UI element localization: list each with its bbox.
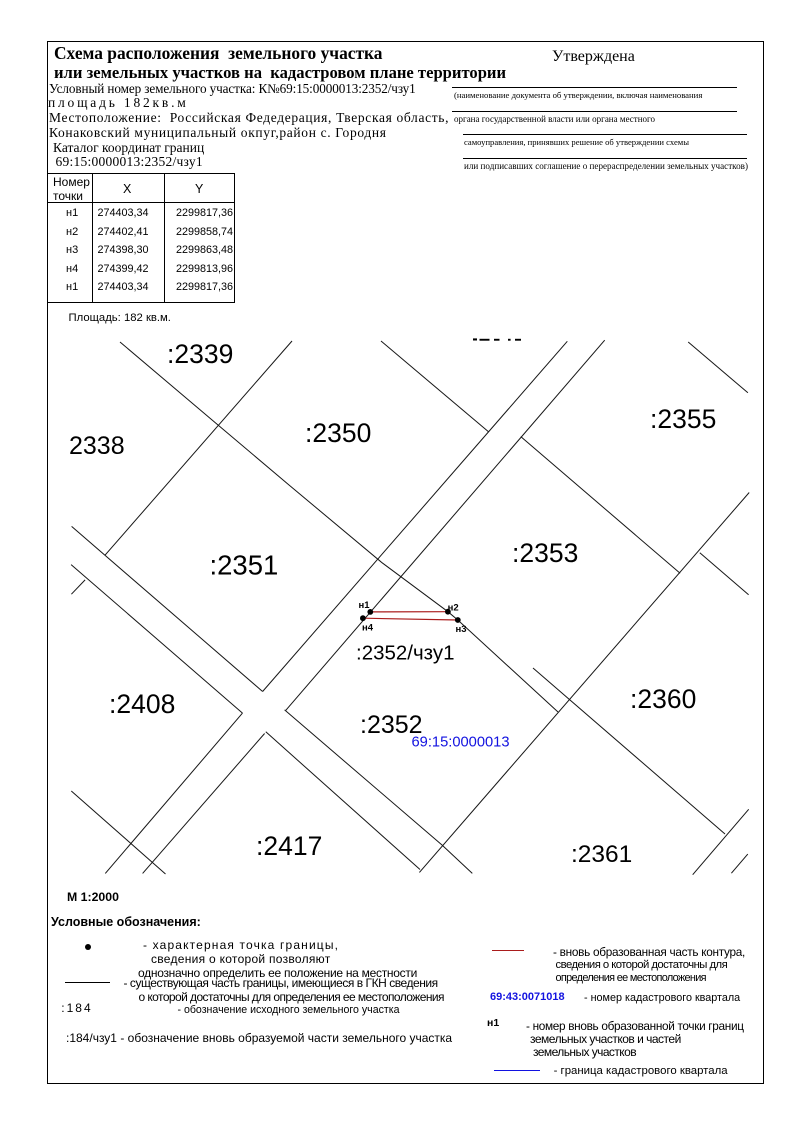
svg-text::2408: :2408 (109, 689, 175, 719)
svg-text:2338: 2338 (69, 432, 125, 460)
svg-text::2355: :2355 (650, 404, 716, 434)
svg-text::2353: :2353 (512, 538, 578, 568)
svg-text::2352/чзу1: :2352/чзу1 (356, 642, 455, 665)
svg-text::2350: :2350 (305, 418, 371, 448)
svg-text:н3: н3 (456, 624, 467, 635)
svg-text::2351: :2351 (210, 550, 279, 581)
svg-text:н1: н1 (359, 600, 371, 611)
svg-text:н2: н2 (448, 603, 459, 614)
svg-text::2360: :2360 (630, 684, 696, 714)
svg-text::2361: :2361 (571, 841, 632, 868)
svg-text:69:15:0000013: 69:15:0000013 (412, 735, 510, 751)
svg-text:н4: н4 (362, 623, 374, 634)
svg-text::2339: :2339 (167, 339, 233, 369)
svg-text::2417: :2417 (256, 831, 322, 861)
